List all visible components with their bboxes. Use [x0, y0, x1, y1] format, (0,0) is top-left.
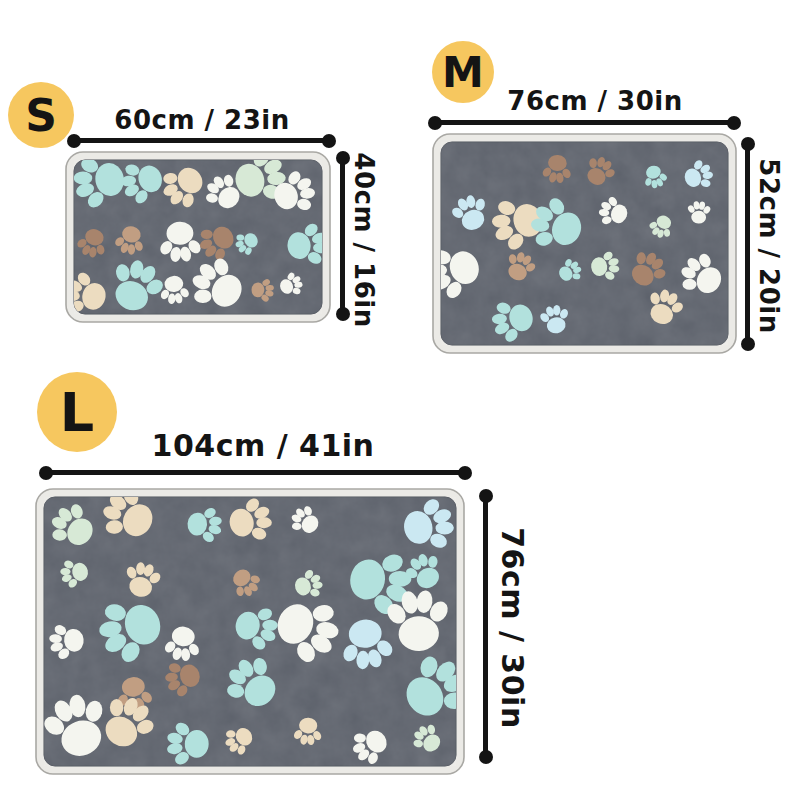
size-badge-l-letter: L [60, 381, 94, 444]
s-width-dimension-arrow [72, 138, 331, 143]
mat-photo-l [35, 488, 465, 775]
size-badge-l: L [37, 372, 117, 452]
m-height-label: 52cm / 20in [754, 158, 784, 333]
l-width-label: 104cm / 41in [138, 428, 388, 463]
l-height-label: 76cm / 30in [495, 527, 530, 729]
mat-fleece-texture [441, 142, 728, 345]
s-height-label: 40cm / 16in [349, 152, 379, 327]
pet-mat-size-chart: S 60cm / 23in 40cm / 16in M 76cm / 30in [0, 0, 800, 800]
size-badge-s-letter: S [25, 90, 57, 141]
mat-photo-s [65, 151, 331, 323]
s-width-label: 60cm / 23in [92, 105, 312, 135]
l-width-dimension-arrow [44, 470, 467, 475]
m-width-label: 76cm / 30in [485, 86, 705, 116]
mat-photo-m [432, 133, 737, 354]
l-height-dimension-arrow [483, 494, 488, 759]
m-width-dimension-arrow [433, 120, 736, 125]
m-height-dimension-arrow [745, 142, 750, 346]
size-badge-s: S [8, 82, 74, 148]
s-height-dimension-arrow [340, 156, 345, 316]
size-badge-m-letter: M [442, 48, 484, 97]
